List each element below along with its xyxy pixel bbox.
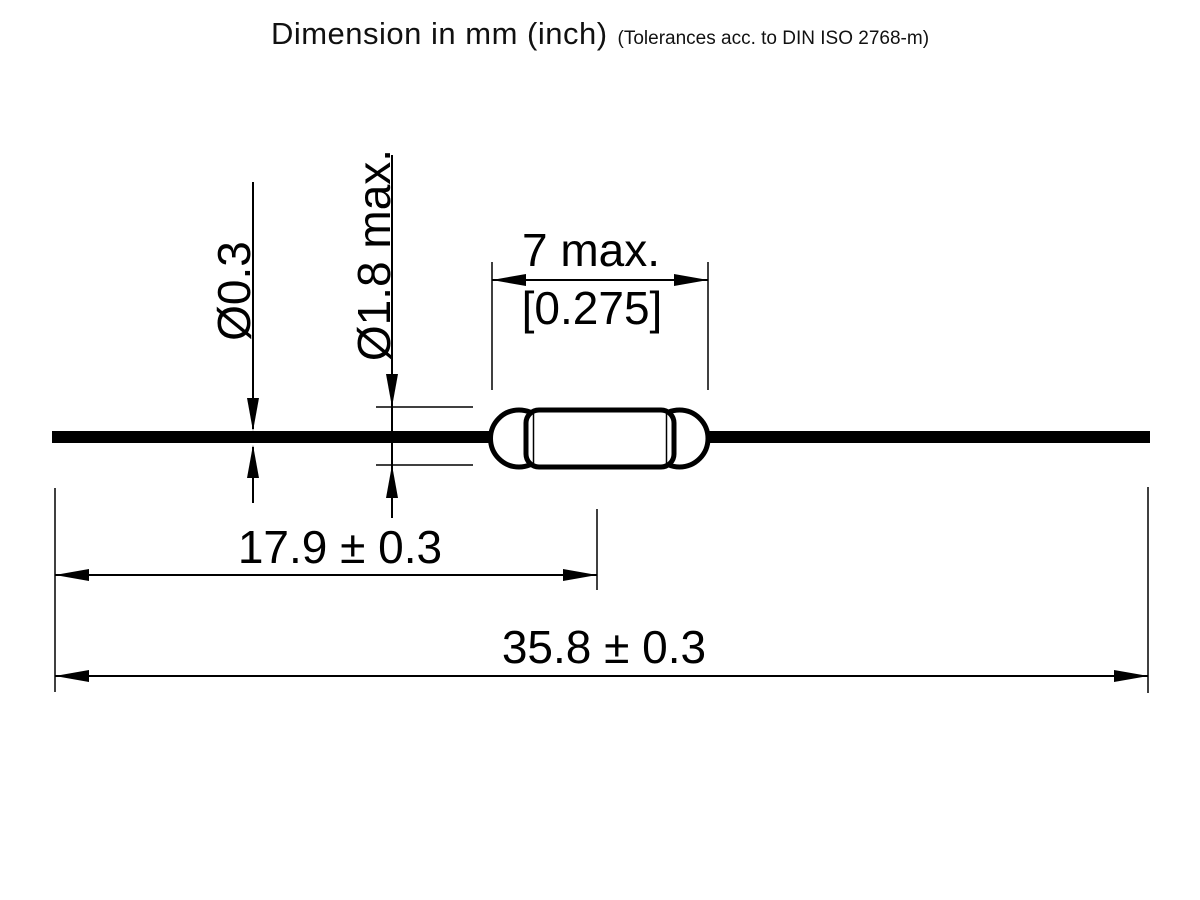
arrowhead-up xyxy=(247,445,259,478)
dim-glass-diameter: Ø1.8 max. xyxy=(348,149,473,518)
arrowhead-down xyxy=(386,374,398,407)
lead-to-center-label: 17.9 ± 0.3 xyxy=(238,521,442,573)
lead-diameter-label: Ø0.3 xyxy=(208,241,260,341)
dim-lead-to-center: 17.9 ± 0.3 xyxy=(55,509,597,590)
arrowhead-right xyxy=(1114,670,1148,682)
dimension-drawing: Ø0.3 Ø1.8 max. 7 max. [0.275] xyxy=(0,0,1200,900)
dim-glass-length: 7 max. [0.275] xyxy=(492,224,708,390)
glass-length-inch-label: [0.275] xyxy=(522,282,663,334)
arrowhead-right xyxy=(563,569,597,581)
arrowhead-left xyxy=(55,569,89,581)
arrowhead-up xyxy=(386,465,398,498)
drawing-page: Dimension in mm (inch) (Tolerances acc. … xyxy=(0,0,1200,900)
overall-length-label: 35.8 ± 0.3 xyxy=(502,621,706,673)
glass-body xyxy=(491,410,709,467)
arrowhead-right xyxy=(674,274,708,286)
arrowhead-down xyxy=(247,398,259,431)
glass-length-mm-label: 7 max. xyxy=(522,224,660,276)
glass-diameter-label: Ø1.8 max. xyxy=(348,149,400,361)
dim-lead-diameter: Ø0.3 xyxy=(208,182,260,503)
dim-overall-length: 35.8 ± 0.3 xyxy=(55,487,1148,693)
arrowhead-left xyxy=(55,670,89,682)
glass-tube xyxy=(526,410,674,467)
